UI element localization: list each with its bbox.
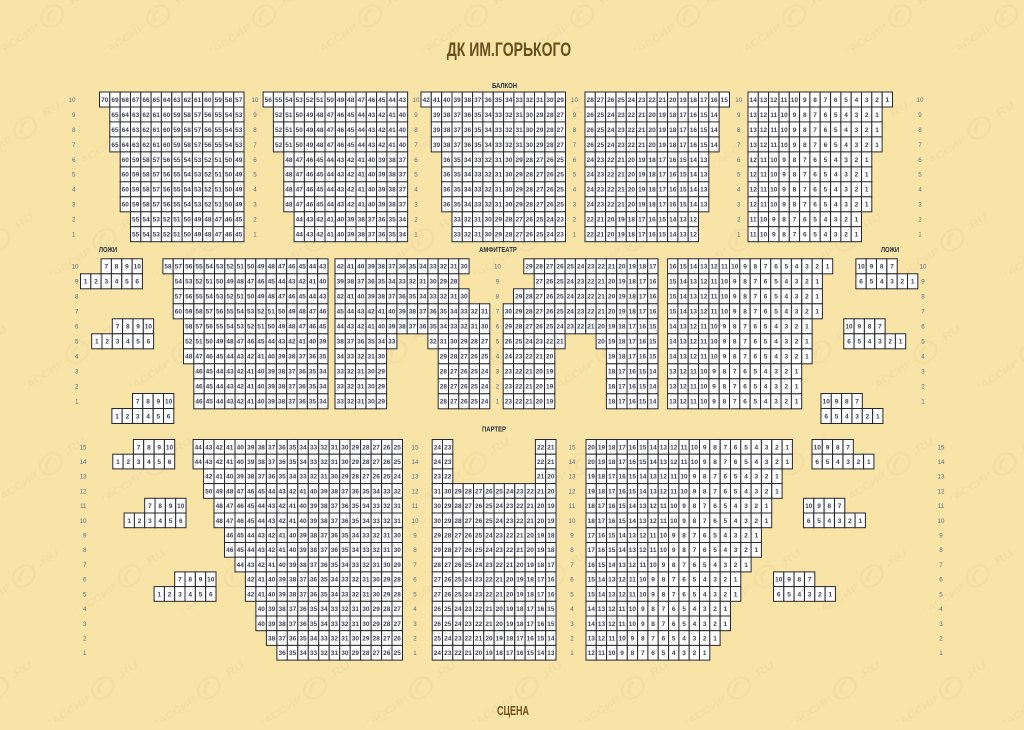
svg-text:19: 19 (608, 354, 616, 361)
svg-text:10: 10 (69, 97, 76, 104)
svg-text:20: 20 (588, 459, 596, 466)
svg-text:14: 14 (690, 264, 698, 271)
svg-text:15: 15 (700, 112, 708, 119)
svg-text:36: 36 (357, 339, 365, 346)
svg-text:8: 8 (147, 444, 151, 451)
svg-text:30: 30 (331, 474, 339, 481)
svg-text:27: 27 (434, 577, 442, 584)
svg-text:37: 37 (453, 142, 461, 149)
svg-text:10: 10 (770, 202, 778, 209)
svg-text:13: 13 (700, 264, 708, 271)
svg-text:8: 8 (158, 503, 162, 510)
svg-text:17: 17 (516, 636, 524, 643)
svg-text:13: 13 (700, 202, 708, 209)
svg-text:16: 16 (669, 202, 677, 209)
svg-text:40: 40 (268, 591, 276, 598)
svg-text:29: 29 (373, 621, 381, 628)
svg-text:29: 29 (440, 354, 448, 361)
svg-text:25: 25 (556, 294, 564, 301)
svg-text:32: 32 (383, 518, 391, 525)
svg-text:1: 1 (775, 488, 779, 495)
svg-text:12: 12 (629, 562, 637, 569)
svg-text:34: 34 (319, 384, 327, 391)
svg-text:12: 12 (670, 444, 678, 451)
svg-text:14: 14 (639, 474, 647, 481)
svg-text:26: 26 (546, 187, 554, 194)
svg-text:19: 19 (659, 112, 667, 119)
svg-text:16: 16 (669, 264, 677, 271)
svg-text:18: 18 (648, 202, 656, 209)
svg-text:32: 32 (484, 187, 492, 194)
svg-text:4: 4 (570, 606, 574, 613)
svg-text:53: 53 (235, 142, 243, 149)
svg-text:55: 55 (215, 127, 223, 134)
svg-text:12: 12 (598, 636, 606, 643)
svg-text:38: 38 (443, 127, 451, 134)
svg-text:48: 48 (216, 518, 224, 525)
svg-text:39: 39 (268, 369, 276, 376)
svg-text:40: 40 (237, 459, 245, 466)
svg-text:19: 19 (546, 384, 554, 391)
svg-text:7: 7 (808, 577, 812, 584)
svg-text:2: 2 (888, 339, 892, 346)
svg-text:45: 45 (206, 384, 214, 391)
svg-text:24: 24 (434, 459, 442, 466)
svg-text:21: 21 (537, 474, 545, 481)
svg-text:39: 39 (299, 547, 307, 554)
svg-text:4: 4 (939, 606, 943, 613)
svg-text:16: 16 (669, 172, 677, 179)
svg-text:48: 48 (285, 187, 293, 194)
svg-text:18: 18 (669, 127, 677, 134)
svg-text:21: 21 (516, 547, 524, 554)
svg-text:3: 3 (784, 324, 788, 331)
svg-text:33: 33 (331, 621, 339, 628)
svg-text:6: 6 (764, 309, 768, 316)
svg-text:31: 31 (495, 172, 503, 179)
svg-text:8: 8 (693, 503, 697, 510)
svg-text:7: 7 (753, 294, 757, 301)
svg-text:26: 26 (465, 533, 473, 540)
svg-text:67: 67 (132, 97, 140, 104)
svg-text:24: 24 (607, 112, 615, 119)
svg-text:13: 13 (629, 547, 637, 554)
svg-text:5: 5 (703, 562, 707, 569)
svg-text:1: 1 (116, 459, 120, 466)
svg-text:3: 3 (75, 369, 79, 376)
svg-text:19: 19 (506, 606, 514, 613)
svg-text:42: 42 (357, 324, 365, 331)
svg-text:11: 11 (650, 533, 657, 540)
svg-text:39: 39 (237, 474, 245, 481)
svg-text:47: 47 (278, 294, 286, 301)
svg-text:9: 9 (693, 474, 697, 481)
svg-text:33: 33 (362, 547, 370, 554)
svg-text:22: 22 (485, 577, 493, 584)
svg-text:50: 50 (296, 112, 304, 119)
svg-text:15: 15 (669, 279, 677, 286)
svg-text:54: 54 (225, 112, 233, 119)
svg-text:39: 39 (299, 533, 307, 540)
svg-text:58: 58 (184, 127, 192, 134)
svg-text:46: 46 (195, 369, 203, 376)
svg-text:11: 11 (681, 459, 688, 466)
svg-text:34: 34 (388, 279, 396, 286)
svg-text:3: 3 (865, 97, 869, 104)
svg-text:22: 22 (598, 264, 606, 271)
svg-text:44: 44 (358, 112, 366, 119)
svg-text:15: 15 (618, 518, 626, 525)
svg-text:41: 41 (358, 202, 366, 209)
svg-text:4: 4 (146, 413, 150, 420)
svg-text:30: 30 (546, 97, 554, 104)
svg-text:11: 11 (760, 172, 767, 179)
svg-text:29: 29 (378, 384, 386, 391)
svg-text:30: 30 (505, 309, 513, 316)
svg-text:20: 20 (527, 533, 535, 540)
svg-text:45: 45 (299, 264, 307, 271)
svg-text:53: 53 (194, 157, 202, 164)
svg-text:56: 56 (163, 172, 171, 179)
svg-text:35: 35 (299, 636, 307, 643)
svg-text:43: 43 (306, 217, 314, 224)
svg-text:38: 38 (258, 459, 266, 466)
svg-text:31: 31 (440, 339, 448, 346)
svg-text:27: 27 (536, 294, 544, 301)
svg-text:34: 34 (352, 533, 360, 540)
svg-text:15: 15 (938, 444, 945, 451)
svg-text:23: 23 (505, 399, 513, 406)
svg-text:8: 8 (496, 294, 500, 301)
svg-text:6: 6 (753, 354, 757, 361)
svg-text:37: 37 (268, 444, 276, 451)
svg-text:18: 18 (629, 279, 637, 286)
svg-text:42: 42 (216, 459, 224, 466)
svg-text:12: 12 (750, 157, 758, 164)
svg-text:21: 21 (598, 279, 606, 286)
svg-text:6: 6 (847, 339, 851, 346)
svg-text:17: 17 (638, 232, 646, 239)
svg-text:19: 19 (537, 533, 545, 540)
svg-text:10: 10 (760, 217, 768, 224)
svg-text:34: 34 (299, 459, 307, 466)
svg-text:48: 48 (237, 279, 245, 286)
svg-text:13: 13 (669, 369, 677, 376)
svg-text:3: 3 (784, 339, 788, 346)
svg-text:6: 6 (253, 157, 257, 164)
svg-text:55: 55 (173, 157, 181, 164)
svg-text:45: 45 (257, 339, 265, 346)
svg-text:20: 20 (537, 503, 545, 510)
svg-text:33: 33 (299, 474, 307, 481)
svg-text:26: 26 (434, 621, 442, 628)
svg-text:26: 26 (587, 127, 595, 134)
svg-text:50: 50 (327, 97, 335, 104)
svg-text:24: 24 (567, 309, 575, 316)
svg-text:47: 47 (215, 217, 223, 224)
svg-text:37: 37 (289, 606, 297, 613)
svg-text:16: 16 (629, 384, 637, 391)
svg-text:20: 20 (648, 142, 656, 149)
svg-text:62: 62 (184, 97, 192, 104)
svg-text:18: 18 (669, 112, 677, 119)
svg-text:59: 59 (132, 157, 140, 164)
svg-text:25: 25 (444, 606, 452, 613)
svg-text:8: 8 (651, 621, 655, 628)
svg-text:40: 40 (257, 399, 265, 406)
svg-text:65: 65 (111, 142, 119, 149)
svg-text:13: 13 (608, 577, 616, 584)
svg-text:13: 13 (660, 444, 668, 451)
svg-text:6: 6 (703, 533, 707, 540)
svg-text:5: 5 (413, 591, 417, 598)
svg-text:2: 2 (795, 339, 799, 346)
svg-text:4: 4 (83, 606, 87, 613)
svg-text:3: 3 (844, 187, 848, 194)
svg-text:5: 5 (824, 202, 828, 209)
svg-text:14: 14 (679, 294, 687, 301)
svg-text:6: 6 (693, 562, 697, 569)
svg-text:60: 60 (163, 127, 171, 134)
svg-text:16: 16 (608, 518, 616, 525)
svg-text:16: 16 (629, 399, 637, 406)
svg-text:15: 15 (679, 264, 687, 271)
svg-text:23: 23 (597, 157, 605, 164)
svg-text:9: 9 (136, 324, 140, 331)
svg-text:28: 28 (526, 157, 534, 164)
svg-text:14: 14 (649, 369, 657, 376)
svg-text:37: 37 (347, 339, 355, 346)
svg-text:5: 5 (817, 518, 821, 525)
svg-text:46: 46 (237, 503, 245, 510)
svg-text:17: 17 (618, 399, 626, 406)
svg-text:23: 23 (577, 294, 585, 301)
svg-text:6: 6 (824, 112, 828, 119)
svg-text:20: 20 (607, 217, 615, 224)
svg-text:44: 44 (216, 384, 224, 391)
svg-text:16: 16 (629, 369, 637, 376)
svg-text:46: 46 (337, 127, 345, 134)
svg-text:8: 8 (743, 279, 747, 286)
svg-text:3: 3 (765, 459, 769, 466)
svg-text:6: 6 (651, 650, 655, 657)
svg-text:53: 53 (194, 187, 202, 194)
svg-text:35: 35 (453, 187, 461, 194)
svg-text:11: 11 (700, 324, 707, 331)
svg-text:12: 12 (750, 187, 758, 194)
svg-text:21: 21 (659, 97, 667, 104)
svg-text:40: 40 (368, 157, 376, 164)
svg-text:10: 10 (165, 398, 173, 405)
svg-text:46: 46 (306, 187, 314, 194)
svg-text:56: 56 (163, 157, 171, 164)
svg-text:12: 12 (700, 279, 708, 286)
svg-text:9: 9 (682, 503, 686, 510)
svg-text:1: 1 (127, 518, 131, 525)
svg-text:35: 35 (341, 547, 349, 554)
svg-text:14: 14 (618, 547, 626, 554)
svg-text:7: 7 (703, 503, 707, 510)
svg-text:8: 8 (126, 324, 130, 331)
svg-text:59: 59 (132, 172, 140, 179)
svg-text:16: 16 (690, 142, 698, 149)
svg-text:18: 18 (588, 503, 596, 510)
svg-text:11: 11 (700, 339, 707, 346)
svg-text:5: 5 (682, 621, 686, 628)
svg-text:8: 8 (782, 232, 786, 239)
svg-text:2: 2 (857, 459, 861, 466)
svg-text:10: 10 (412, 518, 419, 525)
svg-text:19: 19 (618, 309, 626, 316)
svg-text:2: 2 (734, 562, 738, 569)
svg-text:27: 27 (373, 459, 381, 466)
svg-text:3: 3 (844, 202, 848, 209)
svg-text:5: 5 (573, 172, 577, 179)
svg-text:2: 2 (815, 264, 819, 271)
svg-text:10: 10 (721, 294, 729, 301)
svg-text:44: 44 (247, 533, 255, 540)
svg-text:37: 37 (341, 488, 349, 495)
svg-text:62: 62 (142, 112, 150, 119)
svg-text:23: 23 (485, 562, 493, 569)
svg-text:20: 20 (669, 97, 677, 104)
svg-text:9: 9 (857, 324, 861, 331)
svg-text:4: 4 (784, 279, 788, 286)
svg-text:9: 9 (641, 606, 645, 613)
svg-text:61: 61 (153, 127, 161, 134)
svg-text:42: 42 (378, 127, 386, 134)
svg-text:29: 29 (434, 547, 442, 554)
svg-text:8: 8 (693, 518, 697, 525)
svg-text:18: 18 (608, 444, 616, 451)
svg-text:48: 48 (285, 202, 293, 209)
svg-text:22: 22 (496, 562, 504, 569)
svg-text:3: 3 (83, 621, 87, 628)
svg-text:25: 25 (394, 650, 402, 657)
svg-text:12: 12 (690, 324, 698, 331)
svg-text:33: 33 (453, 217, 461, 224)
svg-text:17: 17 (629, 339, 637, 346)
svg-text:22: 22 (628, 127, 636, 134)
svg-text:41: 41 (433, 97, 441, 104)
svg-text:51: 51 (215, 202, 223, 209)
svg-text:28: 28 (525, 309, 533, 316)
svg-text:2: 2 (737, 217, 741, 224)
svg-text:17: 17 (639, 279, 647, 286)
svg-text:11: 11 (770, 112, 777, 119)
svg-text:4: 4 (797, 591, 801, 598)
svg-text:44: 44 (309, 294, 317, 301)
svg-text:46: 46 (257, 279, 265, 286)
svg-text:24: 24 (577, 264, 585, 271)
svg-text:20: 20 (628, 172, 636, 179)
svg-text:2: 2 (126, 413, 130, 420)
svg-text:58: 58 (142, 202, 150, 209)
svg-text:35: 35 (453, 202, 461, 209)
svg-text:46: 46 (237, 518, 245, 525)
svg-text:18: 18 (648, 157, 656, 164)
svg-text:21: 21 (638, 142, 646, 149)
svg-text:7: 7 (878, 324, 882, 331)
svg-text:16: 16 (649, 294, 657, 301)
svg-text:30: 30 (373, 577, 381, 584)
svg-text:45: 45 (316, 157, 324, 164)
svg-text:22: 22 (537, 444, 545, 451)
svg-text:15: 15 (80, 444, 87, 451)
svg-text:9: 9 (641, 621, 645, 628)
svg-text:15: 15 (547, 621, 555, 628)
svg-text:9: 9 (712, 369, 716, 376)
svg-text:10: 10 (775, 577, 783, 584)
svg-text:32: 32 (352, 577, 360, 584)
svg-text:24: 24 (546, 232, 554, 239)
svg-text:21: 21 (496, 591, 504, 598)
svg-text:4: 4 (253, 187, 257, 194)
svg-text:25: 25 (557, 172, 565, 179)
svg-text:19: 19 (546, 399, 554, 406)
svg-text:42: 42 (347, 202, 355, 209)
svg-text:52: 52 (163, 217, 171, 224)
svg-text:36: 36 (398, 294, 406, 301)
svg-text:58: 58 (164, 264, 172, 271)
svg-text:6: 6 (815, 459, 819, 466)
svg-text:10: 10 (770, 187, 778, 194)
svg-text:35: 35 (453, 172, 461, 179)
svg-text:39: 39 (268, 384, 276, 391)
svg-text:15: 15 (669, 294, 677, 301)
svg-text:59: 59 (132, 187, 140, 194)
svg-text:9: 9 (703, 444, 707, 451)
svg-text:34: 34 (484, 112, 492, 119)
svg-text:37: 37 (299, 591, 307, 598)
svg-text:29: 29 (378, 369, 386, 376)
svg-text:9: 9 (75, 279, 79, 286)
svg-text:23: 23 (557, 217, 565, 224)
svg-text:39: 39 (337, 279, 345, 286)
svg-text:32: 32 (310, 474, 318, 481)
svg-text:22: 22 (506, 533, 514, 540)
svg-text:8: 8 (743, 294, 747, 301)
svg-text:9: 9 (573, 112, 577, 119)
svg-text:7: 7 (137, 444, 141, 451)
svg-text:32: 32 (320, 650, 328, 657)
svg-text:61: 61 (153, 112, 161, 119)
svg-text:9: 9 (918, 112, 922, 119)
svg-text:26: 26 (434, 606, 442, 613)
svg-text:20: 20 (496, 606, 504, 613)
svg-text:3: 3 (774, 384, 778, 391)
svg-text:38: 38 (320, 518, 328, 525)
svg-text:34: 34 (450, 309, 458, 316)
svg-text:10: 10 (700, 369, 708, 376)
svg-text:10: 10 (207, 577, 215, 584)
svg-text:26: 26 (546, 202, 554, 209)
svg-text:3: 3 (805, 264, 809, 271)
svg-text:35: 35 (388, 232, 396, 239)
svg-text:51: 51 (173, 217, 181, 224)
svg-text:6: 6 (723, 474, 727, 481)
svg-text:2: 2 (865, 112, 869, 119)
svg-text:22: 22 (537, 459, 545, 466)
svg-text:7: 7 (855, 398, 859, 405)
svg-text:37: 37 (310, 562, 318, 569)
svg-text:20: 20 (608, 294, 616, 301)
svg-text:19: 19 (547, 503, 555, 510)
svg-text:41: 41 (258, 591, 266, 598)
svg-text:36: 36 (310, 577, 318, 584)
svg-text:27: 27 (536, 172, 544, 179)
svg-text:28: 28 (526, 202, 534, 209)
